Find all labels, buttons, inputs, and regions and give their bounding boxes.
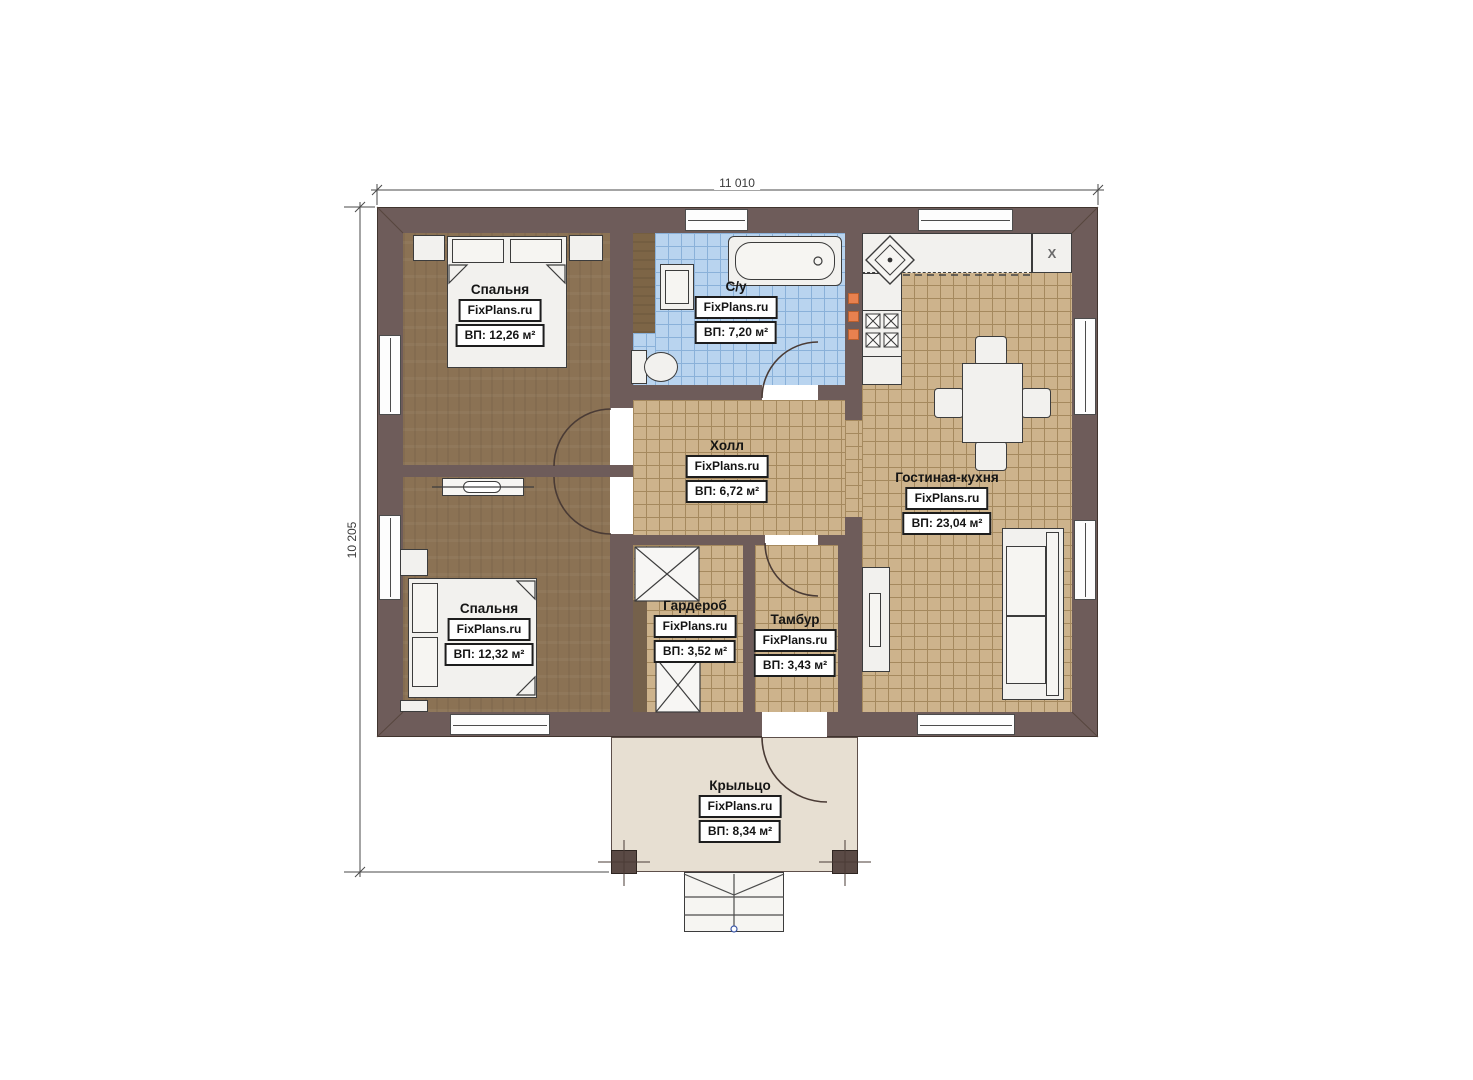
- room-source-badge: FixPlans.ru: [906, 487, 989, 510]
- room-source-badge: FixPlans.ru: [754, 629, 837, 652]
- room-area-badge: ВП: 8,34 м²: [699, 820, 781, 843]
- porch-post-left: [611, 850, 637, 874]
- bathroom-door-opening: [762, 385, 818, 400]
- wall-vent-2: [848, 311, 859, 322]
- room-name: Гардероб: [663, 598, 727, 613]
- tambur-door-opening: [765, 535, 818, 545]
- room-source-badge: FixPlans.ru: [695, 296, 778, 319]
- bed-1-pillow-left: [452, 239, 504, 263]
- bedroom-2-door-opening: [610, 477, 633, 534]
- bed-1-pillow-right: [510, 239, 562, 263]
- sofa-cushion-top: [1006, 546, 1046, 616]
- tv: [869, 593, 881, 647]
- room-label-tambur: Тамбур FixPlans.ru ВП: 3,43 м²: [754, 612, 837, 677]
- window-left-bedroom-2: [379, 515, 401, 600]
- room-source-badge: FixPlans.ru: [686, 455, 769, 478]
- room-area-badge: ВП: 12,32 м²: [445, 643, 534, 666]
- window-top-bathroom: [685, 209, 748, 231]
- nightstand-2-bottom: [400, 700, 428, 712]
- dimension-width-label: 11 010: [714, 176, 760, 190]
- radiator-core: [463, 481, 501, 493]
- wall-vent-1: [848, 293, 859, 304]
- kitchen-appliance-cabinet: X: [1032, 233, 1072, 273]
- room-label-bathroom: С/у FixPlans.ru ВП: 7,20 м²: [695, 279, 778, 344]
- room-area-badge: ВП: 3,52 м²: [654, 640, 736, 663]
- dining-chair-right: [1021, 388, 1051, 418]
- wall-vent-3: [848, 329, 859, 340]
- room-area-badge: ВП: 3,43 м²: [754, 654, 836, 677]
- window-left-bedroom-1: [379, 335, 401, 415]
- room-source-badge: FixPlans.ru: [699, 795, 782, 818]
- toilet-bowl: [644, 352, 678, 382]
- porch-post-right: [832, 850, 858, 874]
- porch-steps: [684, 872, 784, 932]
- room-label-hall: Холл FixPlans.ru ВП: 6,72 м²: [686, 438, 769, 503]
- room-area-badge: ВП: 23,04 м²: [903, 512, 992, 535]
- room-name: Крыльцо: [709, 778, 770, 793]
- window-bottom-bedroom-2: [450, 714, 550, 735]
- nightstand-1-left: [413, 235, 445, 261]
- dining-chair-left: [934, 388, 964, 418]
- room-source-badge: FixPlans.ru: [654, 615, 737, 638]
- window-right-kitchen: [1074, 318, 1096, 415]
- sofa-back: [1046, 532, 1059, 696]
- room-area-badge: ВП: 7,20 м²: [695, 321, 777, 344]
- room-source-badge: FixPlans.ru: [459, 299, 542, 322]
- dimension-height-label: 10 205: [345, 517, 359, 564]
- entrance-door-opening: [762, 712, 827, 737]
- wardrobe-side-panel: [633, 600, 647, 712]
- stove: [862, 310, 902, 357]
- room-name: Спальня: [460, 601, 518, 616]
- window-top-kitchen: [918, 209, 1013, 231]
- washbasin-bowl: [665, 270, 689, 304]
- window-bottom-living: [917, 714, 1015, 735]
- room-label-living-kitchen: Гостиная-кухня FixPlans.ru ВП: 23,04 м²: [895, 470, 998, 535]
- dining-chair-bottom: [975, 441, 1007, 471]
- room-label-bedroom-2: Спальня FixPlans.ru ВП: 12,32 м²: [445, 601, 534, 666]
- nightstand-2-top: [400, 549, 428, 576]
- window-right-living: [1074, 520, 1096, 600]
- room-name: Спальня: [471, 282, 529, 297]
- hall-living-passage: [845, 420, 862, 517]
- room-name: Гостиная-кухня: [895, 470, 998, 485]
- room-source-badge: FixPlans.ru: [448, 618, 531, 641]
- room-name: С/у: [725, 279, 746, 294]
- kitchen-counter: [862, 233, 1032, 273]
- bathroom-cabinet: [633, 233, 655, 333]
- floor-plan: X: [0, 0, 1473, 1080]
- room-label-bedroom-1: Спальня FixPlans.ru ВП: 12,26 м²: [456, 282, 545, 347]
- room-name: Холл: [710, 438, 744, 453]
- bathtub-basin: [735, 242, 835, 280]
- room-name: Тамбур: [771, 612, 820, 627]
- room-area-badge: ВП: 6,72 м²: [686, 480, 768, 503]
- room-area-badge: ВП: 12,26 м²: [456, 324, 545, 347]
- dining-chair-top: [975, 336, 1007, 366]
- dining-table: [962, 363, 1023, 443]
- bedroom-1-door-opening: [610, 408, 633, 465]
- room-label-porch: Крыльцо FixPlans.ru ВП: 8,34 м²: [699, 778, 782, 843]
- sofa-cushion-bottom: [1006, 616, 1046, 684]
- appliance-x-label: X: [1033, 234, 1071, 272]
- bed-2-pillow-bottom: [412, 637, 438, 687]
- room-label-wardrobe: Гардероб FixPlans.ru ВП: 3,52 м²: [654, 598, 737, 663]
- bed-2-pillow-top: [412, 583, 438, 633]
- nightstand-1-right: [569, 235, 603, 261]
